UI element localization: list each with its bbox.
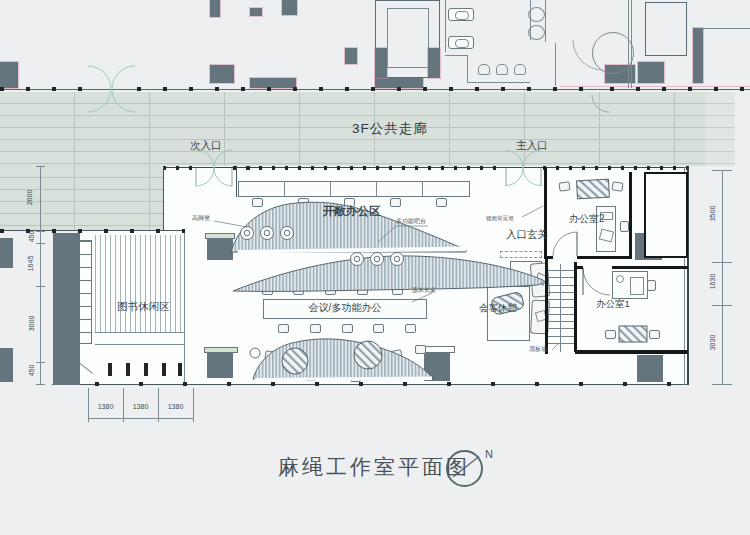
stair-right-wall xyxy=(574,262,577,352)
mirror-wall-callout: 镜面背景墙 xyxy=(486,216,514,222)
dim-label: 1380 xyxy=(88,403,123,410)
dim-tick xyxy=(36,231,45,232)
stair-tread xyxy=(548,343,574,344)
lounge-round-table xyxy=(282,348,308,374)
office2-right-wall xyxy=(629,172,632,259)
wood-table-callout: 原木长桌 xyxy=(412,287,436,293)
stair-tread xyxy=(548,299,574,300)
office1-top-wall xyxy=(612,266,688,269)
plan-title: 麻绳工作室平面图 xyxy=(278,456,470,477)
dim-label: 1645 xyxy=(27,249,34,279)
blackboard-callout: 黑板墙 xyxy=(529,346,547,352)
office1-coffee-table xyxy=(619,326,647,342)
dim-tick xyxy=(36,362,45,363)
multi-bar-callout: 多功能吧台 xyxy=(396,218,426,224)
dim-line-left xyxy=(40,166,41,385)
corridor-side-door-arc xyxy=(592,95,609,112)
open-office-label: 开敞办公区 xyxy=(323,206,381,218)
office2-bottom-wall xyxy=(577,256,632,259)
secondary-entrance-doors xyxy=(196,150,232,186)
dim-tick xyxy=(712,305,732,306)
stair-left-wall xyxy=(545,258,548,354)
office1-desk-monitor xyxy=(630,277,644,295)
stair-rail xyxy=(560,264,561,352)
book-leisure-label: 图书休闲区 xyxy=(117,301,170,312)
dim-label: 450 xyxy=(28,222,35,252)
main-entrance-label: 主入口 xyxy=(516,140,548,151)
office1-desk-lamp xyxy=(616,275,624,283)
dim-tick xyxy=(712,384,732,385)
floor-plan-canvas: 2600 450 1645 3000 450 3500 1630 3030 13… xyxy=(0,0,750,535)
office2-left-wall xyxy=(544,167,547,258)
dim-label: 1630 xyxy=(709,267,716,297)
dim-label: 3030 xyxy=(709,328,716,358)
dim-tick xyxy=(712,170,732,171)
entry-foyer-label: 入口玄关 xyxy=(506,229,548,240)
office1-bottom-wall xyxy=(575,350,688,354)
band-stools xyxy=(351,253,404,266)
dim-tick xyxy=(36,166,45,167)
dim-tick xyxy=(36,384,45,385)
dim-label: 1380 xyxy=(158,403,193,410)
bathroom-door-arc xyxy=(573,40,603,70)
secondary-entrance-label: 次入口 xyxy=(190,140,222,151)
office1-label: 办公室1 xyxy=(596,299,630,309)
stair-tread xyxy=(548,285,574,286)
stair-tread xyxy=(548,277,574,278)
office2-label: 办公室2 xyxy=(569,214,605,224)
dim-line-bottom xyxy=(88,418,194,419)
reception-label: 会客休憩 xyxy=(479,303,517,313)
dim-label: 450 xyxy=(28,356,35,386)
stair-tread xyxy=(548,336,574,337)
rope-lounge-shape xyxy=(253,339,433,379)
dim-tick xyxy=(712,262,732,263)
rope-band-shape xyxy=(233,256,544,292)
corridor-label: 3F公共走廊 xyxy=(352,122,428,136)
dim-label: 3000 xyxy=(28,309,35,339)
dim-line-right xyxy=(722,170,723,385)
office1-door-arc xyxy=(583,268,610,295)
stair-tread xyxy=(548,314,574,315)
stair-tread xyxy=(548,307,574,308)
stair-tread xyxy=(548,321,574,322)
lounge-stool xyxy=(250,348,260,358)
corridor-upper-doors xyxy=(88,66,135,112)
stair-tread xyxy=(548,328,574,329)
office2-door-arc xyxy=(553,232,577,256)
shaft-room xyxy=(644,172,688,258)
dim-label: 2600 xyxy=(26,183,33,213)
main-entrance-doors xyxy=(506,150,541,185)
bar-stools xyxy=(241,227,294,240)
north-label: N xyxy=(485,449,493,460)
dim-label: 3500 xyxy=(709,199,716,229)
bar-stools-callout: 高脚凳 xyxy=(192,215,210,221)
lounge-round-table xyxy=(354,341,382,369)
dim-tick xyxy=(36,286,45,287)
stair-tread xyxy=(548,270,574,271)
dim-label: 1380 xyxy=(123,403,158,410)
stair-tread xyxy=(548,292,574,293)
meeting-label: 会议/多功能办公 xyxy=(263,303,427,313)
dim-ext xyxy=(193,388,194,422)
dim-tick xyxy=(36,243,45,244)
office2-coffee-table xyxy=(577,179,610,199)
